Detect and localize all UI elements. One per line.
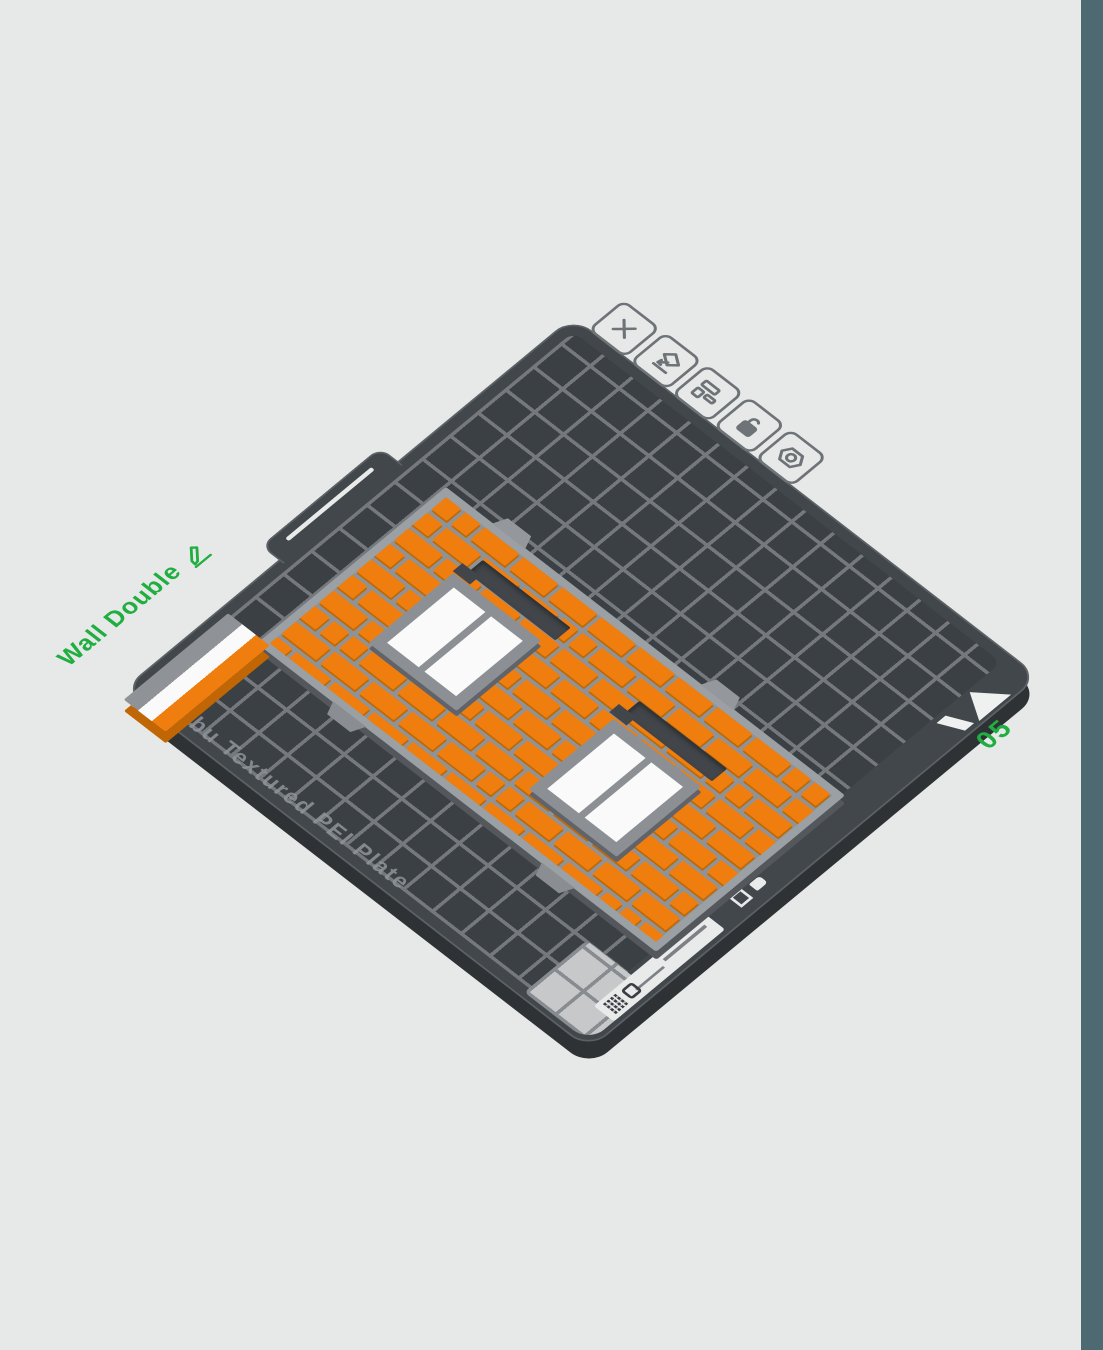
right-panel-edge — [1081, 0, 1103, 1350]
brick — [631, 892, 680, 931]
plate-name-text: Wall Double — [51, 559, 188, 671]
brick — [592, 861, 641, 900]
brick — [568, 633, 598, 657]
brick — [432, 528, 481, 567]
brick — [512, 679, 561, 718]
brick — [630, 861, 679, 900]
edit-pencil-icon[interactable] — [173, 537, 214, 570]
brick — [339, 636, 369, 660]
hand-icon — [749, 876, 768, 891]
brick — [359, 681, 408, 720]
brick — [319, 590, 368, 629]
brick — [320, 651, 369, 690]
brick — [743, 768, 792, 807]
brick — [476, 771, 506, 795]
brick — [781, 767, 811, 791]
brick — [669, 860, 718, 899]
brick — [394, 528, 443, 567]
brick — [550, 679, 599, 718]
brick — [588, 648, 637, 687]
brick — [437, 741, 486, 780]
brick — [801, 782, 831, 806]
3d-viewport[interactable]: Bambu Textured PEI Plate — [0, 0, 1103, 1350]
brick — [707, 860, 756, 899]
brick — [398, 711, 447, 750]
brick — [744, 798, 793, 837]
square-icon — [729, 888, 754, 908]
brick — [432, 497, 462, 521]
brick — [436, 711, 485, 750]
brick — [724, 783, 754, 807]
brick — [281, 621, 330, 660]
corner-stripe-mark — [936, 716, 974, 731]
brick — [320, 621, 350, 645]
brick — [495, 786, 525, 810]
brick — [782, 798, 831, 837]
brick — [669, 891, 699, 915]
brick — [357, 559, 406, 598]
brick — [705, 799, 754, 838]
brick — [668, 830, 717, 869]
brick — [451, 512, 481, 536]
build-plate[interactable]: Bambu Textured PEI Plate — [122, 316, 1040, 1050]
brick — [706, 829, 755, 868]
brick — [475, 741, 524, 780]
brick — [474, 710, 523, 749]
brick — [513, 710, 562, 749]
brick — [549, 648, 598, 687]
plate-number-label: 05 — [970, 714, 1020, 754]
qr-code-icon — [603, 994, 628, 1014]
brick — [744, 829, 793, 868]
label-text-line — [635, 966, 665, 991]
